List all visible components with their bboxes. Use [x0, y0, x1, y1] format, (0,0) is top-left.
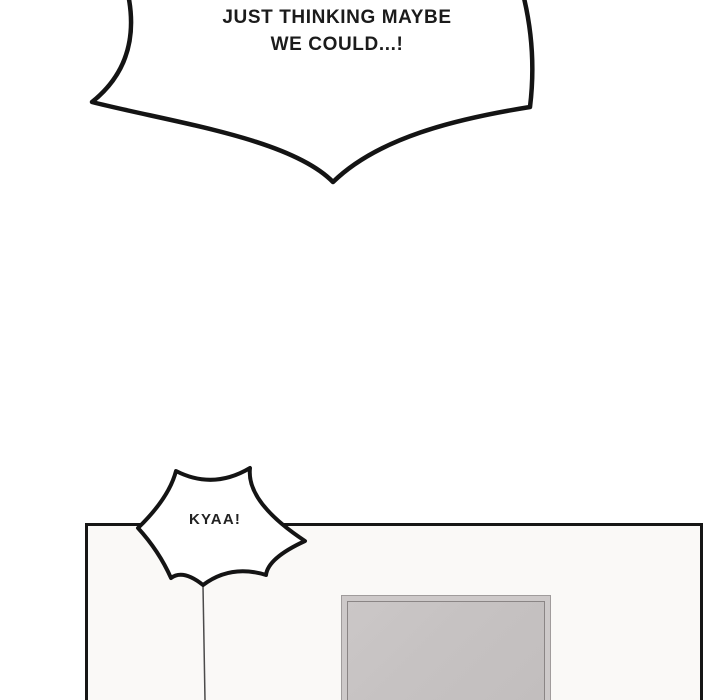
framed-object-inner	[347, 601, 545, 700]
speech-bubble-text: JUST THINKING MAYBE WE COULD...!	[177, 4, 497, 58]
speech-bubble-line-2: WE COULD...!	[177, 31, 497, 58]
webtoon-page: JUST THINKING MAYBE WE COULD...! KYAA!	[0, 0, 720, 700]
burst-bubble-text: KYAA!	[160, 511, 270, 528]
speech-bubble-line-1: JUST THINKING MAYBE	[177, 4, 497, 31]
framed-object	[341, 595, 551, 700]
